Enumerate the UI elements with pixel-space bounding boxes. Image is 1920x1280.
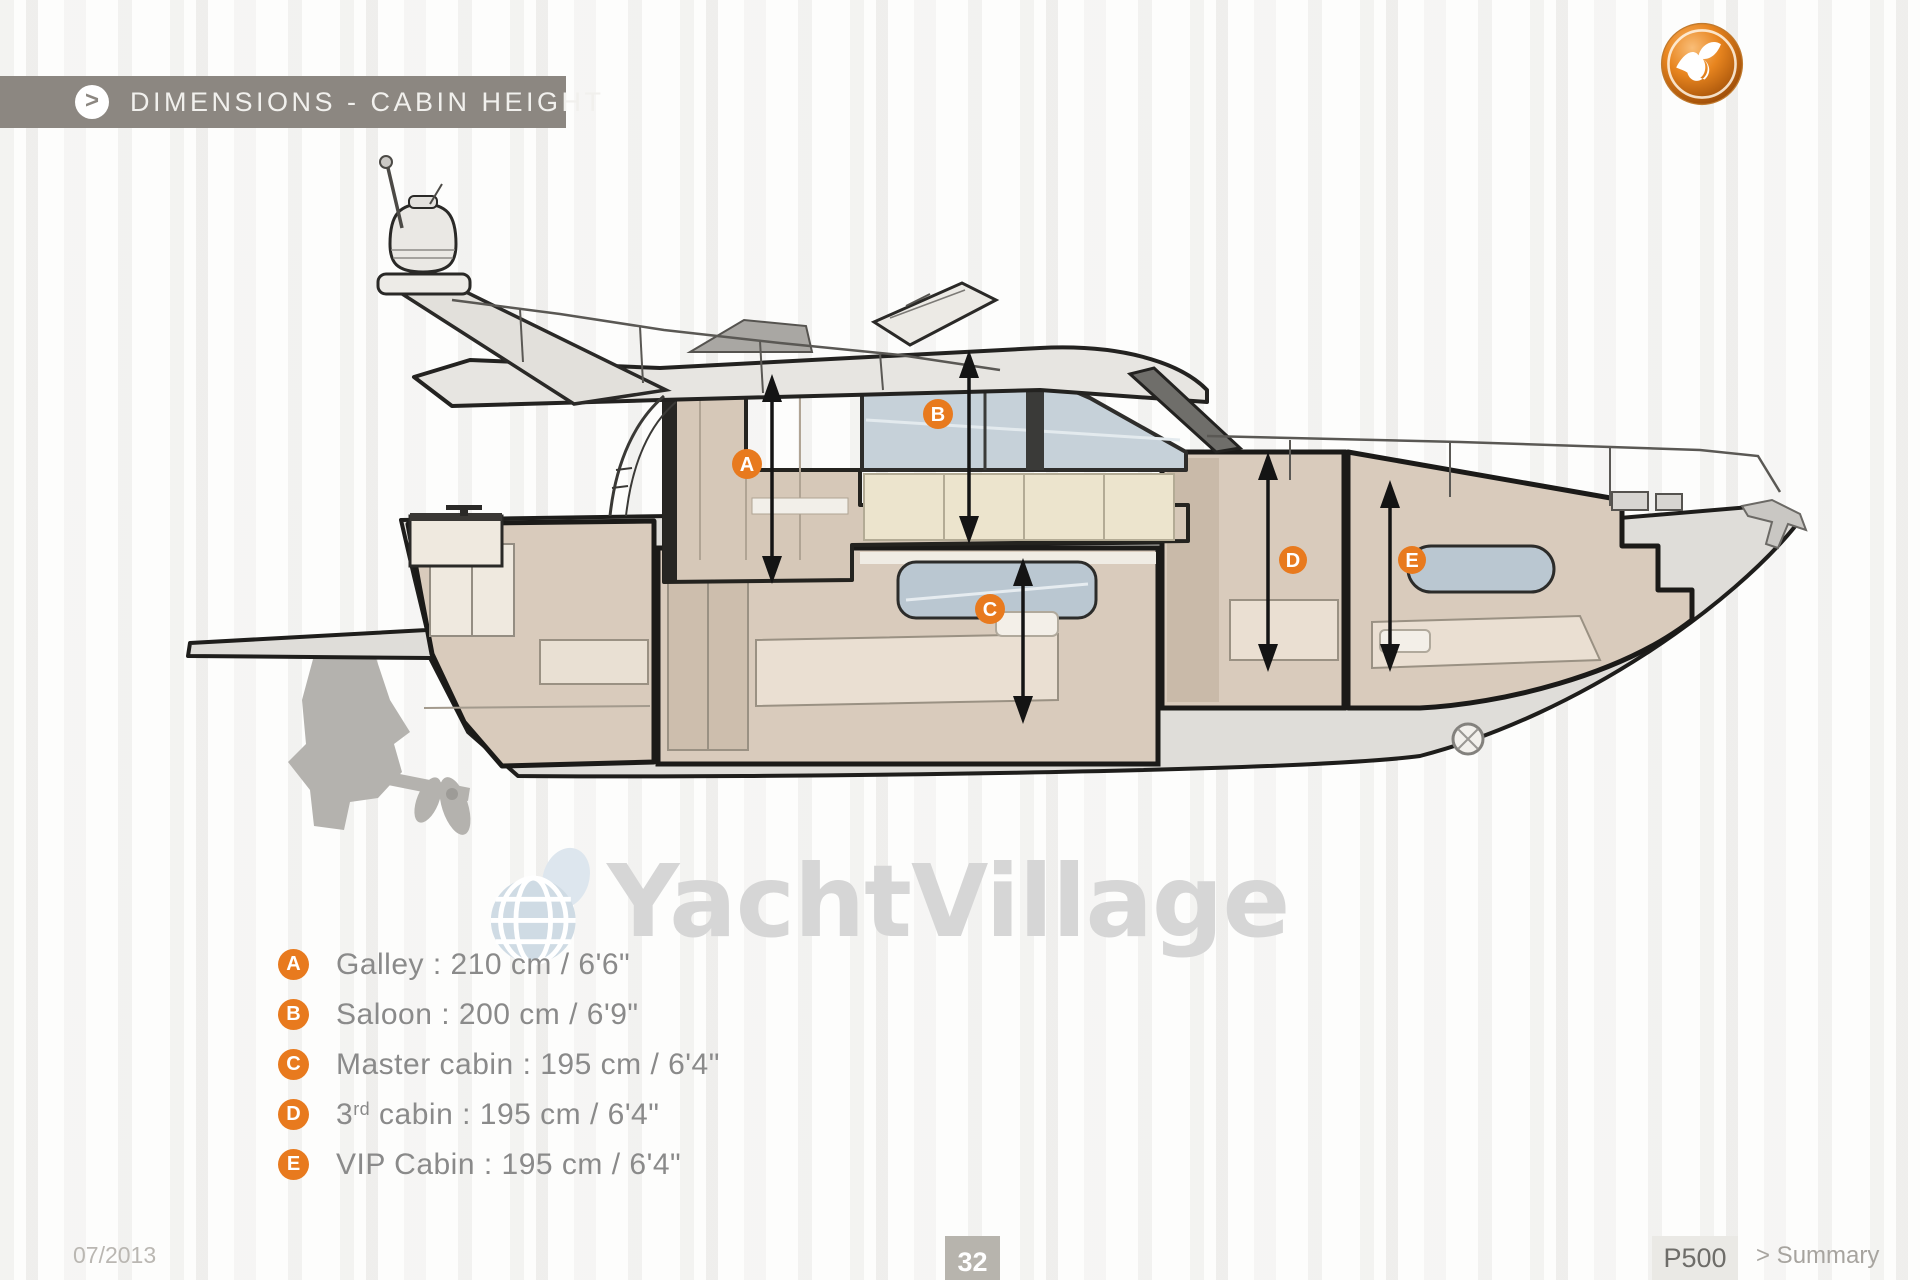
legend-badge-e: E	[278, 1149, 309, 1180]
footer-date: 07/2013	[73, 1242, 156, 1269]
page-number: 32	[957, 1249, 987, 1276]
legend-item-third-cabin: D 3rd cabin : 195 cm / 6'4"	[278, 1099, 720, 1130]
brochure-page: > DIMENSIONS - CABIN HEIGHT	[0, 0, 1920, 1280]
legend-item-master-cabin: C Master cabin : 195 cm / 6'4"	[278, 1049, 720, 1080]
svg-text:D: D	[1286, 550, 1300, 572]
legend-label: Galley : 210 cm / 6'6"	[336, 948, 630, 982]
legend-item-galley: A Galley : 210 cm / 6'6"	[278, 949, 720, 980]
vip-cabin-cutaway	[1348, 452, 1692, 708]
cleat	[446, 505, 482, 510]
legend-badge-b: B	[278, 999, 309, 1030]
radar-platform	[378, 274, 470, 294]
marker-b: B	[923, 399, 953, 429]
legend-badge-a: A	[278, 949, 309, 980]
legend-item-saloon: B Saloon : 200 cm / 6'9"	[278, 999, 720, 1030]
svg-text:B: B	[931, 404, 945, 426]
legend-label: 3rd cabin : 195 cm / 6'4"	[336, 1098, 659, 1132]
marker-c: C	[975, 594, 1005, 624]
svg-text:E: E	[1405, 550, 1418, 572]
marker-d: D	[1279, 546, 1307, 574]
legend-badge-d: D	[278, 1099, 309, 1130]
page-number-box: 32	[945, 1236, 1000, 1280]
cabin-height-legend: A Galley : 210 cm / 6'6" B Saloon : 200 …	[278, 949, 720, 1199]
legend-badge-c: C	[278, 1049, 309, 1080]
flybridge-windscreen	[874, 283, 996, 345]
legend-label: Saloon : 200 cm / 6'9"	[336, 998, 639, 1032]
svg-text:A: A	[740, 454, 754, 476]
legend-label: VIP Cabin : 195 cm / 6'4"	[336, 1148, 681, 1182]
svg-text:C: C	[983, 599, 997, 621]
legend-item-vip-cabin: E VIP Cabin : 195 cm / 6'4"	[278, 1149, 720, 1180]
model-name: P500	[1663, 1243, 1726, 1274]
watermark-text: YachtVillage	[607, 852, 1289, 952]
summary-link[interactable]: > Summary	[1756, 1242, 1879, 1270]
third-cabin-cutaway	[1162, 452, 1344, 708]
legend-label: Master cabin : 195 cm / 6'4"	[336, 1048, 720, 1082]
marker-e: E	[1398, 546, 1426, 574]
model-badge[interactable]: P500	[1652, 1236, 1738, 1280]
marker-a: A	[732, 449, 762, 479]
windlass	[1612, 492, 1648, 510]
